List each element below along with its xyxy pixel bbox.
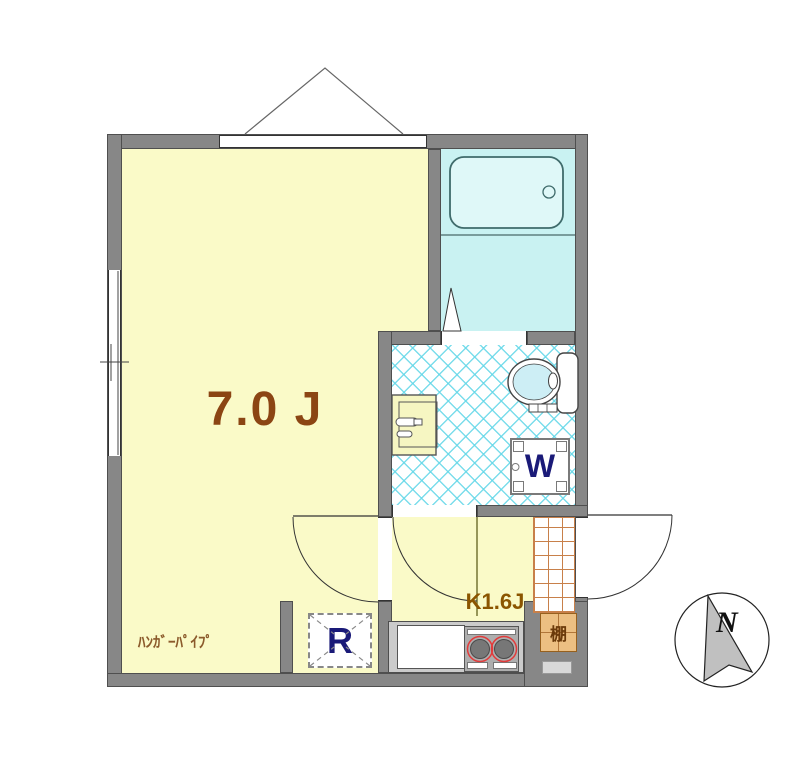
entrance-doorway	[576, 517, 588, 598]
main-room-label: 7.0 J	[175, 382, 355, 437]
compass-needle	[704, 596, 752, 681]
washer-pan-corner	[556, 441, 567, 452]
entrance-step	[542, 661, 572, 674]
stove-back-bar	[467, 629, 516, 635]
hanger-pipe-label: ﾊﾝｶﾞｰﾊﾟｲﾌﾟ	[138, 631, 213, 652]
wall-bottom	[107, 673, 588, 687]
wall-stub-refrigerator	[280, 601, 293, 673]
compass-north-label: N	[715, 606, 739, 639]
refrigerator-space: R	[308, 613, 372, 668]
stove-grill-right	[493, 662, 517, 669]
window-projection-lines	[245, 68, 403, 134]
washer-label: W	[525, 448, 555, 485]
washer-pan-corner	[513, 481, 524, 492]
shelf: 棚	[540, 613, 577, 652]
washer-pan-corner	[513, 441, 524, 452]
wall-washroom-south	[477, 505, 588, 517]
floor-plan: R W 棚	[0, 0, 800, 775]
refrigerator-label: R	[327, 620, 353, 662]
wall-bathroom-west	[428, 149, 441, 331]
kitchen-sink	[397, 625, 465, 669]
window-left	[108, 270, 121, 456]
compass-circle	[675, 593, 769, 687]
window-top	[219, 135, 427, 148]
main-room-doorway	[378, 517, 392, 601]
bathroom-floor	[441, 149, 575, 331]
kitchen-label: K1.6J	[455, 589, 535, 615]
entrance-tile-floor	[533, 517, 575, 613]
entrance-door-arc	[588, 515, 672, 599]
bathroom-doorway	[441, 331, 527, 345]
washer-space: W	[510, 438, 570, 495]
stove-grill-left	[467, 662, 488, 669]
shelf-label: 棚	[550, 620, 567, 645]
washer-pan-corner	[556, 481, 567, 492]
washroom-doorway	[392, 505, 477, 517]
wall-washroom-west	[378, 331, 392, 517]
wall-washroom-north-right	[527, 331, 575, 345]
